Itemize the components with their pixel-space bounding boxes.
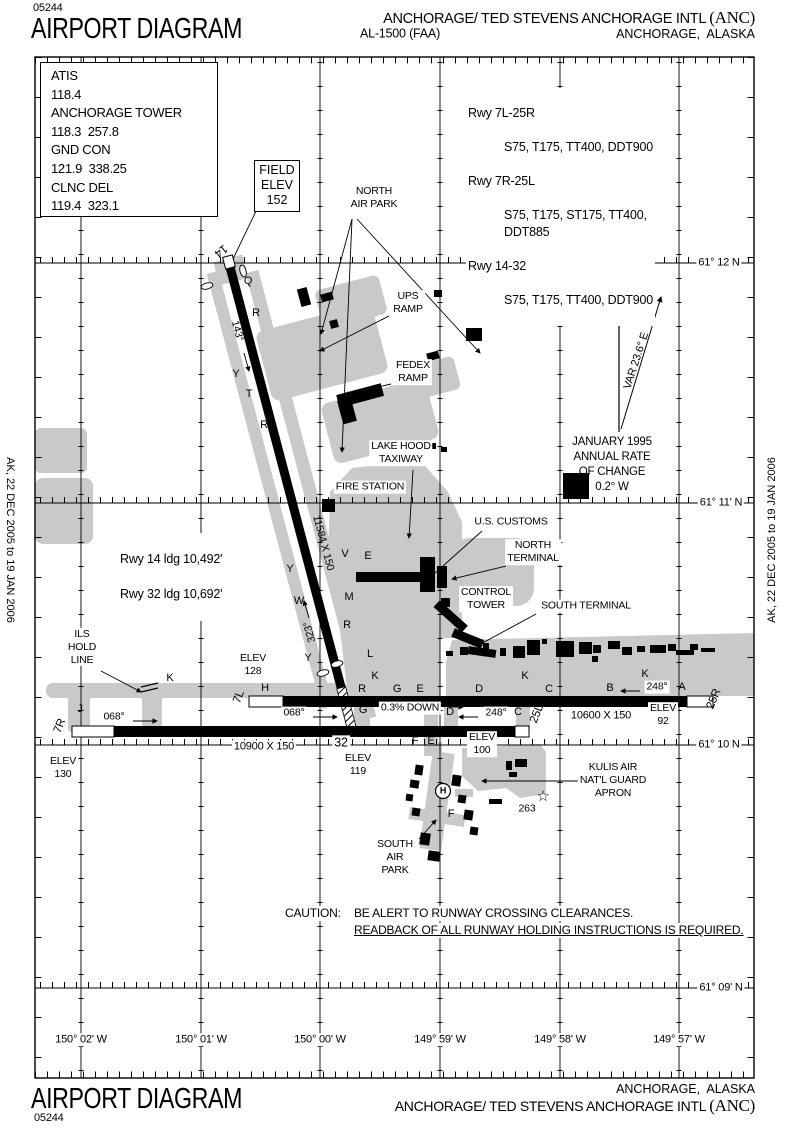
taxiway-letter-k: K xyxy=(371,670,378,682)
taxiway-letter-k: K xyxy=(521,670,528,682)
rwy-7l25r-label: Rwy 7L-25R xyxy=(468,105,653,122)
footer-city-state: ANCHORAGE, ALASKA xyxy=(616,1082,755,1096)
lon-150-02: 150° 02' W xyxy=(53,1033,109,1046)
page-title: AIRPORT DIAGRAM xyxy=(31,11,242,47)
taxiway-letter-f: F xyxy=(448,808,455,820)
taxiway-letter-s: S xyxy=(244,330,251,342)
south-air-park-label: SOUTH AIR PARK xyxy=(375,838,415,876)
rwy-1432-codes: S75, T175, TT400, DDT900 xyxy=(504,292,653,309)
lon-149-57: 149° 57' W xyxy=(651,1033,707,1046)
comm-frequencies-box: ATIS 118.4 ANCHORAGE TOWER 118.3 257.8 G… xyxy=(40,62,218,217)
airport-code: (ANC) xyxy=(709,8,755,27)
rwy-1432-label: Rwy 14-32 xyxy=(468,258,653,275)
taxiway-letter-r: R xyxy=(252,307,260,319)
lake-hood-taxiway-label: LAKE HOOD TAXIWAY xyxy=(369,440,432,466)
heading-068-east: 068° xyxy=(282,707,307,720)
field-elevation-box: FIELD ELEV 152 xyxy=(254,160,300,212)
taxiway-letter-k: K xyxy=(166,672,173,684)
heading-068-west: 068° xyxy=(102,711,127,724)
heading-248-lower: 248° xyxy=(484,707,509,720)
runway-32-number: 32 xyxy=(332,735,350,750)
elevation-263: 263 xyxy=(519,803,536,816)
lat-61-11: 61° 11' N xyxy=(698,496,744,509)
lon-150-01: 150° 01' W xyxy=(173,1033,229,1046)
procedure-id: AL-1500 (FAA) xyxy=(360,26,440,41)
lat-61-09: 61° 09' N xyxy=(697,981,744,994)
airport-diagram-page: 05244 AIRPORT DIAGRAM ANCHORAGE/ TED STE… xyxy=(0,0,786,1132)
lat-61-10: 61° 10 N xyxy=(696,738,741,751)
north-terminal-label: NORTH TERMINAL xyxy=(505,539,561,565)
heading-248-upper: 248° xyxy=(645,681,670,694)
footer-airport-title: ANCHORAGE/ TED STEVENS ANCHORAGE INTL (A… xyxy=(395,1096,755,1116)
lon-149-59: 149° 59' W xyxy=(412,1033,468,1046)
lon-150-00: 150° 00' W xyxy=(292,1033,348,1046)
elev-119-label: ELEV 119 xyxy=(343,752,373,778)
lon-149-58: 149° 58' W xyxy=(532,1033,588,1046)
taxiway-letter-r: R xyxy=(358,683,366,695)
taxiway-letter-b: B xyxy=(606,682,613,694)
north-air-park-label: NORTH AIR PARK xyxy=(349,185,400,211)
annual-rate-note: JANUARY 1995 ANNUAL RATE OF CHANGE 0.2° … xyxy=(572,435,652,495)
taxiway-letter-h: H xyxy=(261,682,269,694)
fire-station-label: FIRE STATION xyxy=(334,481,406,494)
caution-line1: BE ALERT TO RUNWAY CROSSING CLEARANCES. xyxy=(352,906,635,921)
runway-7l-25r xyxy=(283,696,687,707)
taxiway-letter-d: D xyxy=(475,683,483,695)
taxiway-letter-u: U xyxy=(277,453,285,465)
star-icon: ☆ xyxy=(536,788,549,806)
clnc-freq: 119.4 323.1 xyxy=(51,197,217,216)
south-terminal-label: SOUTH TERMINAL xyxy=(539,600,633,613)
taxiway-letter-e: E xyxy=(427,735,434,747)
effective-dates-left: AK, 22 DEC 2005 to 19 JAN 2006 xyxy=(4,457,16,623)
us-customs-label: U.S. CUSTOMS xyxy=(472,516,549,529)
atis-freq: 118.4 xyxy=(51,86,217,105)
effective-dates-right: AK, 22 DEC 2005 to 19 JAN 2006 xyxy=(766,457,778,623)
taxiway-letter-g: G xyxy=(359,704,367,716)
taxiway-letter-c: C xyxy=(545,683,553,695)
taxiway-letter-t: T xyxy=(246,388,253,400)
atis-label: ATIS xyxy=(51,67,217,86)
fedex-ramp-label: FEDEX RAMP xyxy=(394,359,432,385)
caution-line2: READBACK OF ALL RUNWAY HOLDING INSTRUCTI… xyxy=(352,923,746,938)
landing-distance-note: Rwy 14 ldg 10,492' Rwy 32 ldg 10,692' xyxy=(118,533,224,621)
gnd-label: GND CON xyxy=(51,141,217,160)
footer-airport-code: (ANC) xyxy=(709,1096,755,1115)
taxiway-letter-k: K xyxy=(641,668,648,680)
helipad-h-label: H xyxy=(440,786,446,797)
airport-title: ANCHORAGE/ TED STEVENS ANCHORAGE INTL (A… xyxy=(383,8,755,28)
city-state: ANCHORAGE, ALASKA xyxy=(616,27,755,41)
taxiway-letter-y: Y xyxy=(232,368,239,380)
taxiway-letter-m: M xyxy=(345,591,354,603)
elev-100-label: ELEV 100 xyxy=(467,731,497,757)
taxiway-letter-e: E xyxy=(416,683,423,695)
runway-7r-25l xyxy=(114,726,516,737)
ils-hold-line-label: ILS HOLD LINE xyxy=(66,628,98,666)
gradient-label: 0.3% DOWN xyxy=(379,702,441,715)
taxiway-letter-y: Y xyxy=(304,652,311,664)
control-tower-label: CONTROL TOWER xyxy=(459,586,513,612)
ups-ramp-label: UPS RAMP xyxy=(391,290,425,316)
taxiway-letter-r: R xyxy=(343,619,351,631)
chart-id-bottom: 05244 xyxy=(34,1112,64,1126)
kulis-apron-label: KULIS AIR NAT'L GUARD APRON xyxy=(578,761,648,799)
runway-strength-data: Rwy 7L-25R S75, T175, TT400, DDT900 Rwy … xyxy=(466,88,655,326)
taxiway-letter-r: R xyxy=(260,419,268,431)
runway-7l-25r-dimensions: 10600 X 150 xyxy=(569,709,633,722)
tower-label: ANCHORAGE TOWER xyxy=(51,104,217,123)
taxiway-letter-d: D xyxy=(446,706,454,718)
rwy-7l25r-codes: S75, T175, TT400, DDT900 xyxy=(504,139,653,156)
rwy-7r25l-codes: S75, T175, ST175, TT400, DDT885 xyxy=(504,207,653,241)
tower-freq: 118.3 257.8 xyxy=(51,123,217,142)
taxiway-letter-e: E xyxy=(364,550,371,562)
taxiway-letter-v: V xyxy=(341,548,348,560)
taxiway-letter-c: C xyxy=(514,706,522,718)
taxiway-letter-j: J xyxy=(77,703,82,715)
clnc-label: CLNC DEL xyxy=(51,179,217,198)
taxiway-letter-a: A xyxy=(678,681,685,693)
taxiway-letter-f: F xyxy=(412,735,419,747)
elev-92-label: ELEV 92 xyxy=(648,702,678,728)
elev-128-label: ELEV 128 xyxy=(238,652,268,678)
rwy-7r25l-label: Rwy 7R-25L xyxy=(468,173,653,190)
taxiway-letter-l: L xyxy=(367,648,373,660)
gnd-freq: 121.9 338.25 xyxy=(51,160,217,179)
taxiway-letter-w: W xyxy=(294,595,304,607)
runway-7r-25l-dimensions: 10900 X 150 xyxy=(232,740,296,753)
taxiway-letter-q: Q xyxy=(244,275,252,287)
taxiway-letter-y: Y xyxy=(286,563,293,575)
taxiway-letter-g: G xyxy=(393,683,401,695)
elev-130-label: ELEV 130 xyxy=(48,755,78,781)
lat-61-12: 61° 12 N xyxy=(696,256,741,269)
caution-prefix: CAUTION: xyxy=(283,906,343,921)
